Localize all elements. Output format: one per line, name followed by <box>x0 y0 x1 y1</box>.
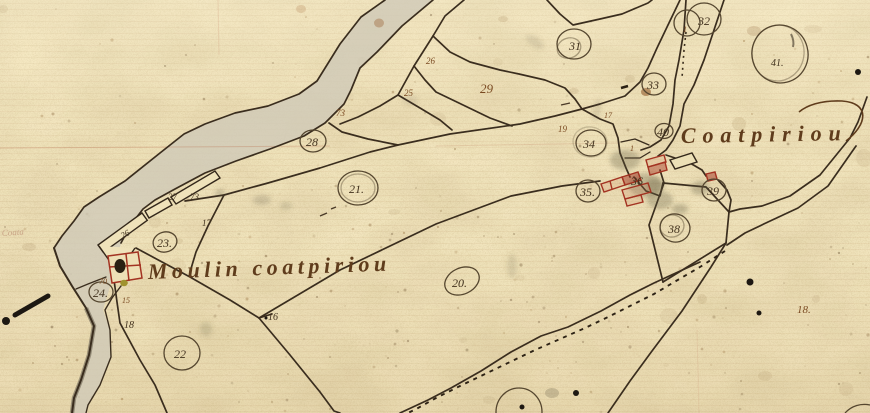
svg-text:15: 15 <box>122 296 130 305</box>
svg-text:1: 1 <box>630 144 634 153</box>
svg-text:31: 31 <box>568 39 581 53</box>
svg-text:70: 70 <box>99 277 107 286</box>
svg-text:18: 18 <box>124 320 134 331</box>
svg-text:23.: 23. <box>157 236 172 250</box>
svg-text:21.: 21. <box>349 182 364 196</box>
svg-text:28: 28 <box>306 135 318 149</box>
svg-text:18.: 18. <box>797 304 811 316</box>
svg-text:73: 73 <box>190 192 200 202</box>
svg-text:22: 22 <box>174 347 186 361</box>
svg-text:35.: 35. <box>579 185 595 199</box>
svg-text:32: 32 <box>697 14 710 28</box>
svg-text:33: 33 <box>646 78 659 92</box>
svg-text:24.: 24. <box>93 286 108 300</box>
svg-text:29: 29 <box>480 81 494 96</box>
svg-text:16: 16 <box>268 312 278 323</box>
svg-text:17: 17 <box>604 111 613 120</box>
svg-text:73: 73 <box>336 108 346 118</box>
svg-text:Coata: Coata <box>1 226 24 238</box>
svg-text:25: 25 <box>404 88 414 98</box>
svg-text:26: 26 <box>426 56 436 66</box>
svg-text:39: 39 <box>706 184 719 198</box>
svg-text:36: 36 <box>630 174 643 188</box>
svg-text:Coatpiriou: Coatpiriou <box>681 120 848 148</box>
svg-text:34: 34 <box>582 137 595 151</box>
svg-text:38: 38 <box>667 222 680 236</box>
svg-text:17: 17 <box>202 218 212 228</box>
svg-text:41.: 41. <box>771 58 784 69</box>
svg-text:40: 40 <box>657 125 669 139</box>
svg-text:20.: 20. <box>452 276 467 290</box>
svg-text:1: 1 <box>683 25 687 34</box>
svg-text:27: 27 <box>168 192 178 202</box>
svg-text:19: 19 <box>558 124 568 134</box>
